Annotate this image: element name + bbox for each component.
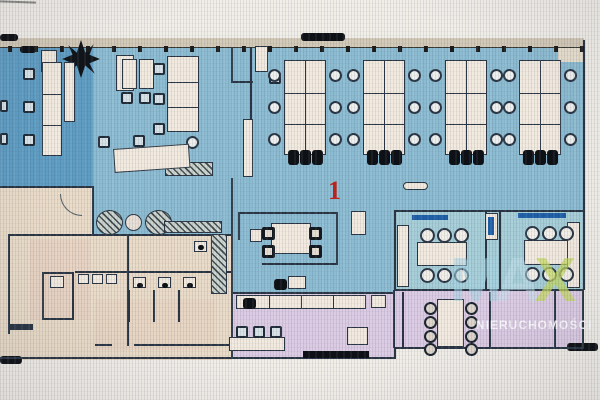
chair (525, 226, 540, 241)
desk-cluster (429, 60, 505, 173)
chair (490, 133, 503, 146)
logo-letter-m: M (450, 246, 496, 315)
chair (424, 343, 437, 356)
desk-divider (466, 61, 467, 154)
chair-black (523, 150, 534, 165)
desk (255, 46, 268, 72)
chair (329, 101, 342, 114)
window-mullion (346, 46, 350, 52)
desk-divider (446, 124, 486, 125)
bench (403, 182, 428, 190)
window-mullion (502, 46, 506, 52)
logo-letter-x: X (534, 246, 569, 315)
window-mullion (112, 46, 116, 52)
chair (465, 343, 478, 356)
chair (309, 245, 322, 258)
chair (490, 101, 503, 114)
chair (23, 101, 35, 113)
chair (253, 326, 265, 338)
chair-black (312, 150, 323, 165)
pillar (397, 225, 409, 287)
desk-bank (519, 60, 561, 155)
desk-divider (364, 124, 404, 125)
logo-letter-a: A (496, 246, 535, 315)
pillar (243, 119, 253, 177)
chair (347, 133, 360, 146)
chair (139, 92, 151, 104)
glass-wall-bar (518, 213, 566, 218)
desk-bank (284, 60, 326, 155)
cabinet (351, 211, 366, 235)
window-mullion (476, 46, 480, 52)
window-mullion (164, 46, 168, 52)
chair (408, 101, 421, 114)
chair-black (379, 150, 390, 165)
wall (231, 47, 233, 83)
shaft-hatch (211, 234, 227, 294)
chair-black (461, 150, 472, 165)
window-mullion (60, 46, 64, 52)
wall (583, 40, 585, 290)
wall (238, 212, 240, 240)
desk (122, 59, 137, 89)
chair (153, 93, 165, 105)
lounge-bench (42, 62, 62, 156)
chair (437, 228, 452, 243)
toilet (133, 277, 146, 288)
chair (0, 100, 8, 112)
desk-divider (364, 93, 404, 94)
desk-bank (167, 56, 199, 132)
desk-bank (363, 60, 405, 155)
chair (424, 330, 437, 343)
chair-black (367, 150, 378, 165)
toilet (194, 241, 207, 252)
chair (454, 228, 469, 243)
chair (408, 133, 421, 146)
chair (133, 135, 145, 147)
chair (98, 136, 110, 148)
cabinet (347, 327, 368, 345)
chair (408, 69, 421, 82)
chair (503, 133, 516, 146)
chair-black (300, 150, 311, 165)
chair (268, 133, 281, 146)
sink (371, 295, 386, 308)
window-mullion (190, 46, 194, 52)
wall (92, 188, 94, 236)
wall (75, 271, 232, 273)
table (229, 337, 285, 351)
desk-divider (540, 61, 541, 154)
floor-tint (95, 300, 215, 350)
stool (250, 229, 262, 242)
zone-label: 1 (328, 176, 341, 206)
lounge-bench (64, 62, 75, 122)
wall-mark (0, 34, 18, 41)
desk-divider (305, 61, 306, 154)
desk (139, 59, 154, 89)
chair (420, 228, 435, 243)
chair (424, 316, 437, 329)
window-mullion (294, 46, 298, 52)
chair (23, 68, 35, 80)
desk-divider (520, 93, 560, 94)
chair (262, 245, 275, 258)
chair (542, 226, 557, 241)
chair-black (449, 150, 460, 165)
window-mullion (372, 46, 376, 52)
chair (236, 326, 248, 338)
wall (8, 234, 10, 334)
desk-divider (384, 61, 385, 154)
fixture (50, 276, 64, 288)
plant-icon (125, 214, 142, 231)
window-mullion (424, 46, 428, 52)
chair-black (288, 150, 299, 165)
window-mullion (138, 46, 142, 52)
window-mullion (580, 46, 584, 52)
floor-plan: 1 MAX NIERUCHOMOŚCI (0, 0, 600, 400)
stairs-hatch (164, 221, 222, 233)
chair (503, 69, 516, 82)
chair (490, 69, 503, 82)
chair (270, 326, 282, 338)
window-mullion (34, 46, 38, 52)
scale-bar (303, 351, 369, 358)
chair (559, 226, 574, 241)
toilet (183, 277, 196, 288)
chair (0, 133, 8, 145)
desk-bank (445, 60, 487, 155)
chair (429, 133, 442, 146)
stall-partition (178, 290, 180, 322)
wall (0, 186, 94, 188)
wall (250, 47, 252, 130)
wall (394, 210, 396, 290)
chair (424, 302, 437, 315)
stall-partition (153, 290, 155, 322)
chair (153, 63, 165, 75)
window-mullion (554, 46, 558, 52)
wall (231, 178, 233, 358)
chair-black (274, 279, 287, 290)
wall (134, 344, 232, 346)
plant-icon (96, 210, 123, 235)
photo-scratch (0, 0, 36, 3)
desk-divider (446, 93, 486, 94)
window-mullion (398, 46, 402, 52)
chair (564, 101, 577, 114)
chair (309, 227, 322, 240)
chair-black (391, 150, 402, 165)
glass-wall-bar (412, 215, 448, 220)
desk-divider (520, 124, 560, 125)
chair-black (243, 298, 256, 309)
wall (393, 290, 395, 348)
window-mullion (528, 46, 532, 52)
wall (395, 210, 584, 212)
desk-cluster (347, 60, 423, 173)
window-mullion (216, 46, 220, 52)
watermark-logo: MAX (450, 250, 570, 312)
sink (78, 274, 89, 284)
desk-cluster (268, 60, 344, 173)
wall (238, 212, 338, 214)
wall-mark (301, 33, 345, 41)
desk-divider (285, 93, 325, 94)
chair (262, 227, 275, 240)
window-mullion (86, 46, 90, 52)
watermark-text: NIERUCHOMOŚCI (476, 318, 592, 332)
chair (23, 134, 35, 146)
window-mullion (8, 46, 12, 52)
chair (268, 101, 281, 114)
chair-black (473, 150, 484, 165)
wall (231, 292, 395, 294)
desk (288, 276, 306, 289)
wall (394, 347, 396, 359)
chair (329, 133, 342, 146)
wall (402, 292, 404, 348)
window-mullion (268, 46, 272, 52)
sink (106, 274, 117, 284)
chair (329, 69, 342, 82)
chair (347, 101, 360, 114)
chair (429, 69, 442, 82)
wall-thick (8, 324, 33, 330)
booth-door (488, 217, 494, 235)
chair-black (547, 150, 558, 165)
sink (92, 274, 103, 284)
wall (95, 344, 112, 346)
chair (564, 133, 577, 146)
wall (262, 263, 338, 265)
desk-cluster (503, 60, 579, 173)
window-mullion (450, 46, 454, 52)
chair (347, 69, 360, 82)
chair (121, 92, 133, 104)
window-mullion (320, 46, 324, 52)
wall (8, 234, 232, 236)
window-mullion (242, 46, 246, 52)
toilet (158, 277, 171, 288)
chair (268, 69, 281, 82)
chair-black (535, 150, 546, 165)
floor-plan-photo: 1 MAX NIERUCHOMOŚCI (0, 0, 600, 400)
chair (503, 101, 516, 114)
stall-partition (128, 290, 130, 322)
chair (153, 123, 165, 135)
desk-divider (285, 124, 325, 125)
chair (420, 268, 435, 283)
wall (336, 212, 338, 265)
chair (564, 69, 577, 82)
meeting-table (271, 223, 311, 254)
chair (429, 101, 442, 114)
